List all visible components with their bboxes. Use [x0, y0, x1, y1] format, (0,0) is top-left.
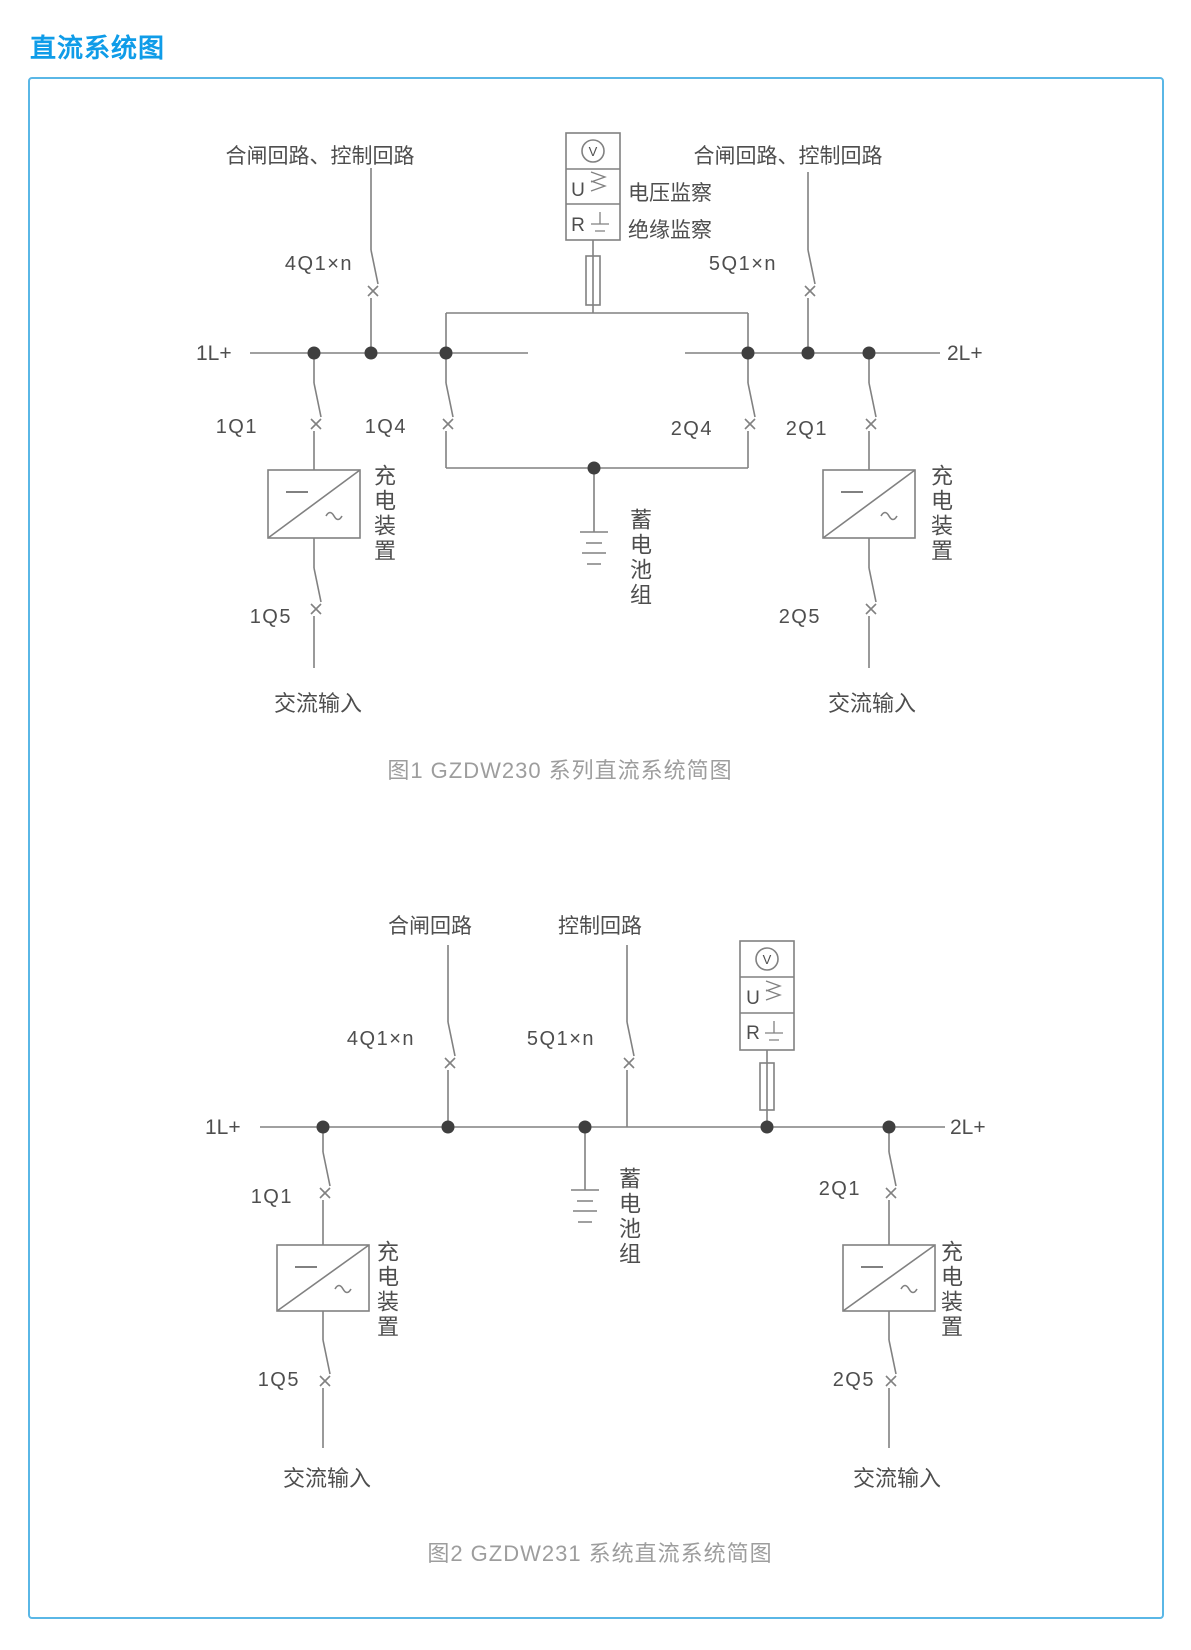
- ac-input-label-right: 交流输入: [828, 686, 916, 718]
- breaker-2q1: [866, 353, 876, 470]
- charger-label-right: 充电装置: [939, 1240, 961, 1340]
- breaker-5q1: [624, 945, 634, 1127]
- charger-label-left: 充电装置: [375, 1240, 397, 1340]
- closing-control-label-left: 合闸回路、控制回路: [226, 140, 415, 170]
- breaker-5q1: [805, 172, 815, 353]
- voltage-relay-letter: U: [746, 988, 760, 1009]
- ac-input-label-left: 交流输入: [274, 686, 362, 718]
- bus-label-1l: 1L+: [205, 1116, 241, 1140]
- insulation-monitor-label: 绝缘监察: [628, 214, 712, 244]
- breaker-1q4: [443, 353, 453, 468]
- battery-label: 蓄电池组: [628, 508, 650, 608]
- charger-right-symbol: [843, 1245, 935, 1311]
- breaker-label-2q1: 2Q1: [819, 1178, 861, 1201]
- breaker-label-2q5: 2Q5: [779, 606, 821, 629]
- charger-right-symbol: [823, 470, 915, 538]
- figure1-caption: 图1 GZDW230 系列直流系统简图: [387, 753, 732, 785]
- voltage-relay-letter: U: [571, 180, 585, 201]
- figure2-caption: 图2 GZDW231 系统直流系统简图: [427, 1536, 772, 1568]
- bus-label-2l: 2L+: [947, 342, 983, 366]
- breaker-1q1: [311, 353, 321, 470]
- breaker-2q5: [866, 538, 876, 668]
- breaker-label-4q1: 4Q1×n: [347, 1028, 415, 1051]
- breaker-label-1q5: 1Q5: [250, 606, 292, 629]
- page: 直流系统图: [0, 0, 1191, 1650]
- bus-label-1l: 1L+: [196, 342, 232, 366]
- breaker-label-1q1: 1Q1: [216, 416, 258, 439]
- insulation-relay-letter: R: [571, 215, 585, 236]
- voltmeter-letter: V: [763, 952, 772, 967]
- diagram1-linework: [250, 133, 940, 668]
- charger-label-right: 充电装置: [929, 464, 951, 564]
- voltage-monitor-label: 电压监察: [628, 177, 712, 207]
- breaker-label-4q1: 4Q1×n: [285, 253, 353, 276]
- breaker-1q5: [320, 1311, 330, 1448]
- breaker-label-1q4: 1Q4: [365, 416, 407, 439]
- battery-symbol: [571, 1127, 599, 1222]
- monitor-letters: V U R V U R: [571, 144, 772, 1044]
- breaker-label-5q1: 5Q1×n: [527, 1028, 595, 1051]
- breaker-2q5: [886, 1311, 896, 1448]
- closing-control-label-right: 合闸回路、控制回路: [694, 140, 883, 170]
- closing-circuit-label: 合闸回路: [388, 910, 472, 940]
- battery-label: 蓄电池组: [617, 1167, 639, 1267]
- breaker-4q1: [445, 945, 455, 1127]
- charger-left-symbol: [277, 1245, 369, 1311]
- breaker-label-1q5: 1Q5: [258, 1369, 300, 1392]
- breaker-1q5: [311, 538, 321, 668]
- charger-label-left: 充电装置: [372, 464, 394, 564]
- bus-tie-link: [446, 313, 748, 353]
- charger-left-symbol: [268, 470, 360, 538]
- ac-input-label-left: 交流输入: [283, 1461, 371, 1493]
- bus-label-2l: 2L+: [950, 1116, 986, 1140]
- junction-dots: [308, 347, 876, 475]
- insulation-relay-letter: R: [746, 1023, 760, 1044]
- breaker-label-2q5: 2Q5: [833, 1369, 875, 1392]
- breaker-2q4: [745, 353, 755, 468]
- control-circuit-label: 控制回路: [558, 910, 642, 940]
- battery-symbol: [580, 468, 608, 564]
- breaker-label-1q1: 1Q1: [251, 1186, 293, 1209]
- breaker-label-5q1: 5Q1×n: [709, 253, 777, 276]
- circuit-linework: V U R V U R: [0, 0, 1191, 1650]
- breaker-label-2q4: 2Q4: [671, 418, 713, 441]
- breaker-label-2q1: 2Q1: [786, 418, 828, 441]
- ac-input-label-right: 交流输入: [853, 1461, 941, 1493]
- breaker-1q1: [320, 1127, 330, 1245]
- voltmeter-letter: V: [589, 144, 598, 159]
- breaker-2q1: [886, 1127, 896, 1245]
- breaker-4q1: [368, 168, 378, 353]
